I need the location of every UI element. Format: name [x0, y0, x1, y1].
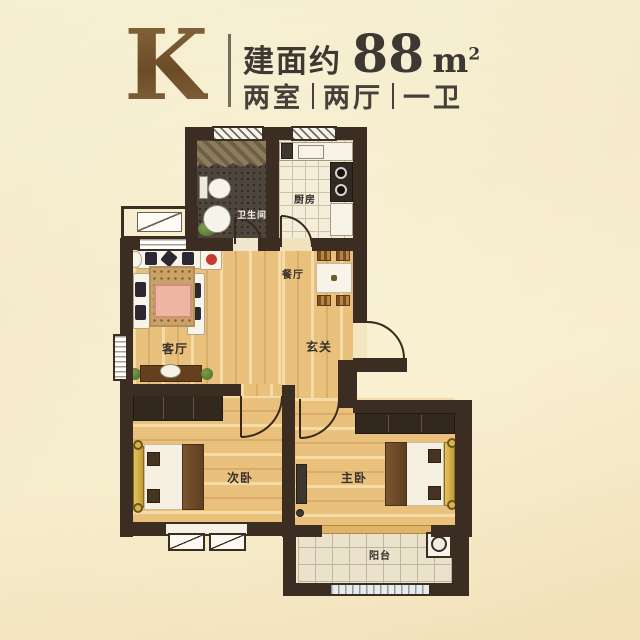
label-balcony: 阳台	[369, 547, 391, 562]
door-swing-overlay	[0, 0, 640, 640]
bedroom2-door-arc	[241, 396, 282, 437]
master-door-arc	[300, 399, 339, 438]
label-kitchen: 厨房	[294, 191, 316, 206]
bathroom-door-arc	[235, 218, 261, 244]
label-bathroom: 卫生间	[237, 208, 267, 221]
floor-plan-page: K 建面约 88 m2 两室 两厅 一卫	[0, 0, 640, 640]
kitchen-door-arc	[281, 216, 312, 247]
entry-door-arc	[367, 322, 404, 359]
label-master: 主卧	[341, 469, 367, 486]
label-foyer: 玄关	[306, 338, 332, 355]
label-living: 客厅	[162, 340, 188, 357]
label-dining: 餐厅	[282, 266, 304, 281]
label-bedroom2: 次卧	[227, 469, 253, 486]
